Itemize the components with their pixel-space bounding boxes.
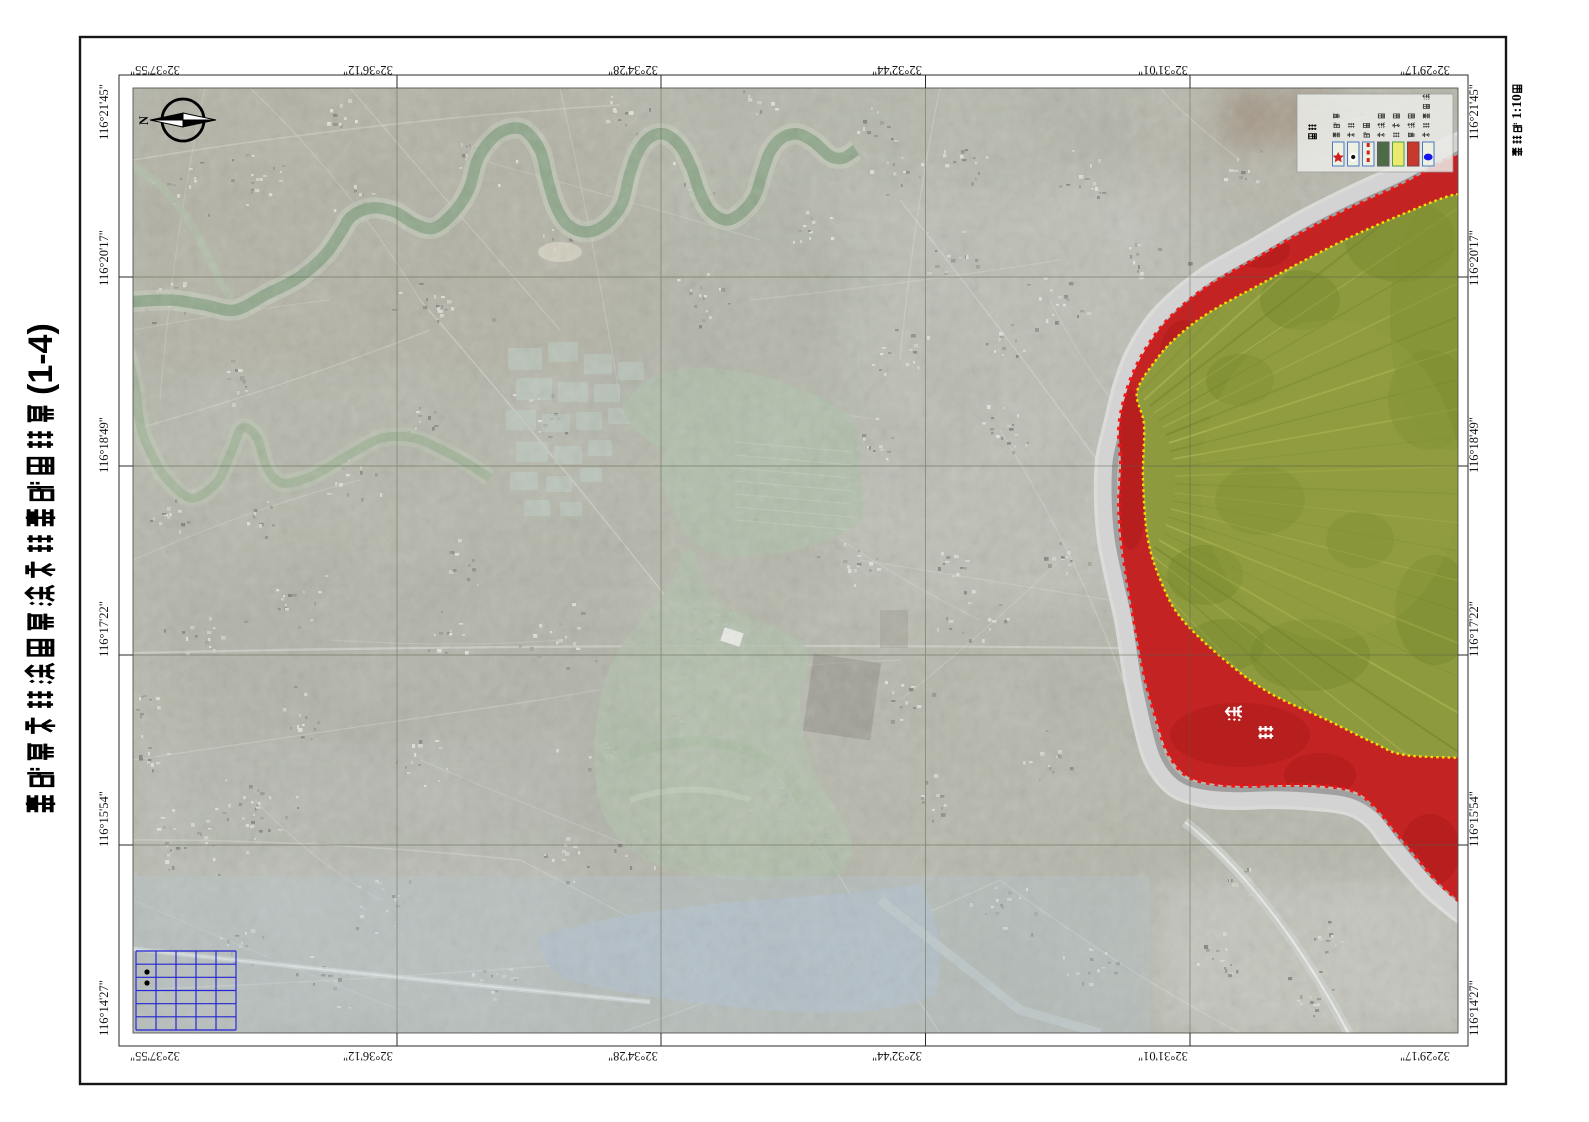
svg-text:32°37'55": 32°37'55" (130, 63, 180, 77)
svg-text:116°18'49": 116°18'49" (97, 417, 111, 473)
svg-text:116°15'54": 116°15'54" (97, 791, 111, 847)
svg-text:32°34'28": 32°34'28" (608, 63, 658, 77)
svg-text:116°21'45": 116°21'45" (1467, 84, 1481, 140)
svg-text:116°15'54": 116°15'54" (1467, 791, 1481, 847)
svg-text:116°18'49": 116°18'49" (1467, 417, 1481, 473)
svg-text:32°32'44": 32°32'44" (872, 63, 922, 77)
svg-text:116°14'27": 116°14'27" (1467, 980, 1481, 1036)
svg-text:32°34'28": 32°34'28" (608, 1049, 658, 1063)
svg-text:116°21'45": 116°21'45" (97, 84, 111, 140)
svg-text:1:10: 1:10 (1509, 94, 1524, 119)
svg-text:116°17'22": 116°17'22" (97, 601, 111, 657)
svg-text:32°36'12": 32°36'12" (343, 1049, 393, 1063)
svg-text:32°31'01": 32°31'01" (1138, 63, 1188, 77)
svg-text:116°17'22": 116°17'22" (1467, 601, 1481, 657)
svg-text:116°14'27": 116°14'27" (97, 980, 111, 1036)
svg-text:32°31'01": 32°31'01" (1138, 1049, 1188, 1063)
svg-text:32°32'44": 32°32'44" (872, 1049, 922, 1063)
svg-text:32°29'17": 32°29'17" (1400, 63, 1450, 77)
svg-text:(1-4): (1-4) (22, 323, 60, 395)
svg-text:116°20'17": 116°20'17" (1467, 230, 1481, 286)
svg-text:32°29'17": 32°29'17" (1400, 1049, 1450, 1063)
svg-text:N: N (137, 116, 151, 125)
svg-text:32°36'12": 32°36'12" (343, 63, 393, 77)
svg-text:116°20'17": 116°20'17" (97, 230, 111, 286)
svg-text:32°37'55": 32°37'55" (130, 1049, 180, 1063)
